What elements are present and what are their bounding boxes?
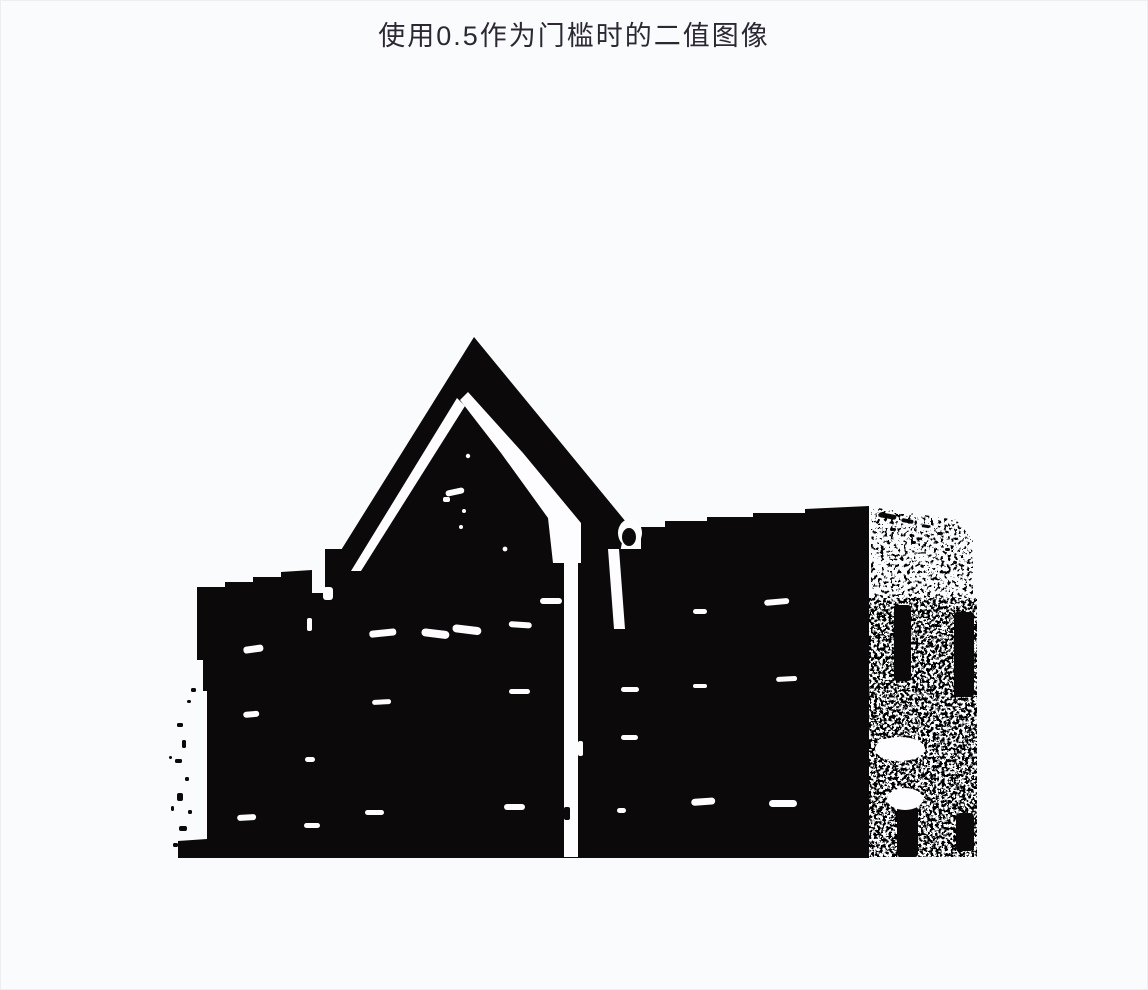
window-glint (504, 804, 525, 810)
window-glint (237, 814, 256, 821)
side-window (954, 612, 974, 697)
attic-dot (459, 525, 463, 529)
building-silhouette (178, 337, 869, 858)
attic-hook-tail (443, 497, 450, 502)
window-glint (540, 598, 562, 604)
left-edge-specks (169, 688, 196, 847)
window-glint (304, 823, 320, 828)
facade-gap-bump (578, 741, 583, 756)
attic-dot (466, 454, 470, 458)
window-glint (617, 808, 626, 813)
pulley-circle (622, 528, 636, 546)
window-glint (621, 687, 639, 692)
window-glint (372, 699, 391, 705)
binary-image-figure (1, 1, 1148, 990)
attic-dot (462, 509, 466, 513)
side-window (956, 813, 974, 851)
window-glint (365, 810, 384, 815)
side-window (897, 807, 918, 857)
side-wall-upper-speckle (871, 507, 973, 598)
window-glint (693, 684, 707, 688)
junction-slit (323, 587, 333, 600)
window-glint (693, 609, 707, 614)
side-window (894, 605, 911, 681)
window-glint (305, 757, 315, 762)
window-glint (509, 689, 530, 694)
textured-side-wall (869, 507, 977, 857)
window-glint (769, 800, 797, 807)
light-patch (875, 737, 925, 761)
gap-intrusion (564, 807, 570, 820)
figure-page: 使用0.5作为门槛时的二值图像 (0, 0, 1148, 990)
right-facade (641, 506, 869, 858)
light-patch (887, 788, 923, 810)
attic-dot (503, 547, 508, 552)
window-glint (621, 735, 638, 740)
junction-tick (307, 618, 312, 631)
